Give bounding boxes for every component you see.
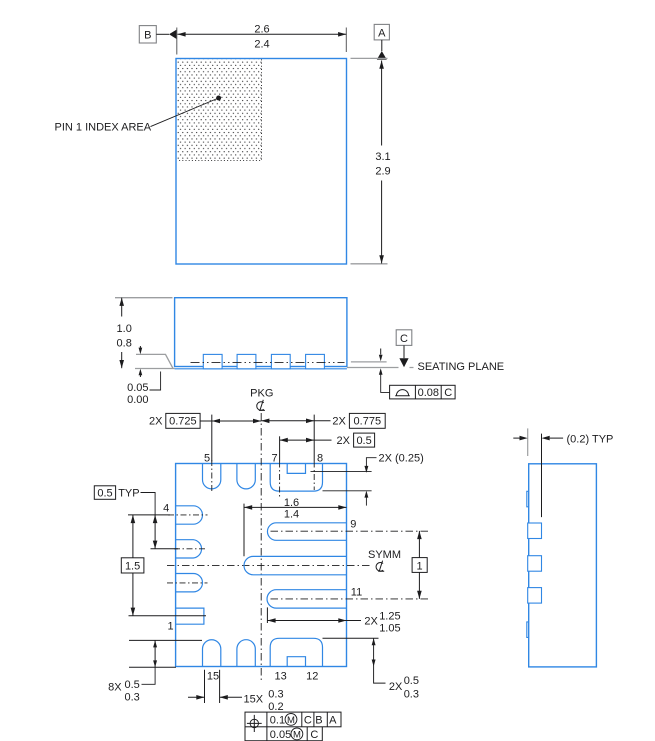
svg-text:5: 5 bbox=[204, 453, 210, 465]
svg-text:0.5: 0.5 bbox=[404, 675, 419, 687]
svg-text:1: 1 bbox=[168, 620, 174, 632]
svg-text:2.6: 2.6 bbox=[254, 23, 269, 35]
svg-text:7: 7 bbox=[271, 453, 277, 465]
svg-text:0.775: 0.775 bbox=[354, 416, 382, 428]
svg-text:2X: 2X bbox=[337, 435, 351, 447]
svg-text:2X: 2X bbox=[364, 615, 378, 627]
svg-text:B: B bbox=[144, 30, 151, 42]
svg-text:2.9: 2.9 bbox=[375, 165, 390, 177]
svg-text:0.5: 0.5 bbox=[97, 487, 112, 499]
svg-text:PIN 1 INDEX AREA: PIN 1 INDEX AREA bbox=[55, 121, 152, 133]
svg-text:SEATING PLANE: SEATING PLANE bbox=[418, 361, 505, 373]
svg-text:0.5: 0.5 bbox=[125, 679, 140, 691]
svg-text:TYP: TYP bbox=[118, 487, 139, 499]
svg-text:0.725: 0.725 bbox=[169, 416, 197, 428]
svg-text:0.3: 0.3 bbox=[404, 689, 419, 701]
svg-text:0.8: 0.8 bbox=[117, 337, 132, 349]
svg-text:2X: 2X bbox=[149, 416, 163, 428]
svg-text:C: C bbox=[310, 729, 318, 741]
svg-text:8: 8 bbox=[317, 453, 323, 465]
svg-text:C: C bbox=[400, 333, 408, 345]
svg-text:3.1: 3.1 bbox=[375, 151, 390, 163]
svg-text:C: C bbox=[444, 387, 452, 399]
svg-text:PKG: PKG bbox=[250, 388, 273, 400]
svg-text:M: M bbox=[293, 729, 301, 740]
svg-text:2.4: 2.4 bbox=[254, 38, 269, 50]
svg-text:15X: 15X bbox=[244, 693, 264, 705]
svg-text:2X: 2X bbox=[332, 416, 346, 428]
svg-text:1: 1 bbox=[417, 560, 423, 572]
svg-text:0.5: 0.5 bbox=[356, 435, 371, 447]
svg-text:A: A bbox=[378, 28, 386, 40]
svg-text:1.05: 1.05 bbox=[379, 622, 400, 634]
svg-text:0.05: 0.05 bbox=[270, 729, 291, 741]
svg-text:0.00: 0.00 bbox=[127, 394, 148, 406]
svg-text:0.08: 0.08 bbox=[418, 387, 439, 399]
svg-text:C: C bbox=[304, 714, 312, 726]
svg-text:4: 4 bbox=[163, 503, 169, 515]
svg-text:0.1: 0.1 bbox=[270, 714, 285, 726]
svg-text:1.0: 1.0 bbox=[117, 323, 132, 335]
svg-text:1.5: 1.5 bbox=[125, 561, 140, 573]
svg-text:9: 9 bbox=[350, 519, 356, 531]
svg-text:1.6: 1.6 bbox=[284, 497, 299, 509]
svg-text:B: B bbox=[315, 714, 322, 726]
svg-text:8X: 8X bbox=[108, 681, 122, 693]
svg-text:15: 15 bbox=[207, 671, 219, 683]
svg-text:11: 11 bbox=[351, 587, 362, 599]
svg-text:1.25: 1.25 bbox=[379, 610, 400, 622]
svg-text:0.3: 0.3 bbox=[125, 691, 140, 703]
svg-text:A: A bbox=[329, 714, 337, 726]
svg-text:(0.2) TYP: (0.2) TYP bbox=[567, 434, 614, 446]
svg-text:1.4: 1.4 bbox=[284, 508, 299, 520]
svg-text:0.05: 0.05 bbox=[127, 382, 148, 394]
svg-text:12: 12 bbox=[306, 671, 318, 683]
svg-text:0.2: 0.2 bbox=[268, 701, 283, 713]
svg-text:13: 13 bbox=[274, 671, 286, 683]
svg-text:SYMM: SYMM bbox=[368, 549, 401, 561]
svg-text:M: M bbox=[287, 715, 295, 726]
svg-text:2X: 2X bbox=[389, 681, 403, 693]
svg-text:0.3: 0.3 bbox=[268, 689, 283, 701]
svg-text:2X (0.25): 2X (0.25) bbox=[379, 453, 424, 465]
